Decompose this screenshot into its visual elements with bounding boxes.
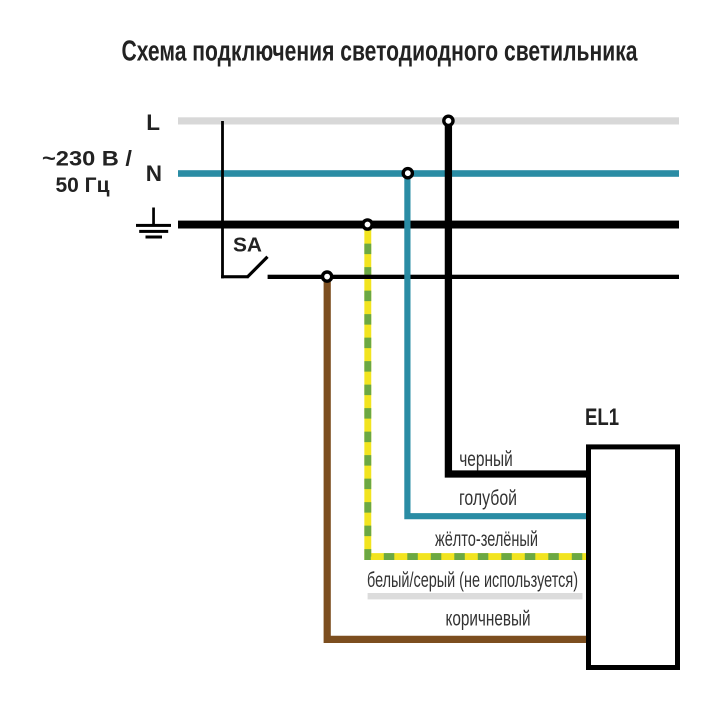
svg-text:белый/серый (не используется): белый/серый (не используется): [367, 568, 578, 592]
svg-text:SA: SA: [233, 234, 262, 257]
svg-text:черный: черный: [459, 447, 513, 471]
svg-text:голубой: голубой: [459, 486, 517, 510]
svg-text:EL1: EL1: [585, 404, 619, 431]
svg-text:N: N: [146, 161, 162, 186]
svg-text:~230 В /: ~230 В /: [42, 148, 132, 171]
svg-text:50 Гц: 50 Гц: [55, 174, 109, 197]
svg-text:коричневый: коричневый: [446, 607, 531, 631]
svg-text:жёлто-зелёный: жёлто-зелёный: [435, 527, 538, 551]
svg-text:L: L: [146, 110, 160, 135]
svg-text:Схема подключения светодиодног: Схема подключения светодиодного светильн…: [122, 36, 639, 68]
